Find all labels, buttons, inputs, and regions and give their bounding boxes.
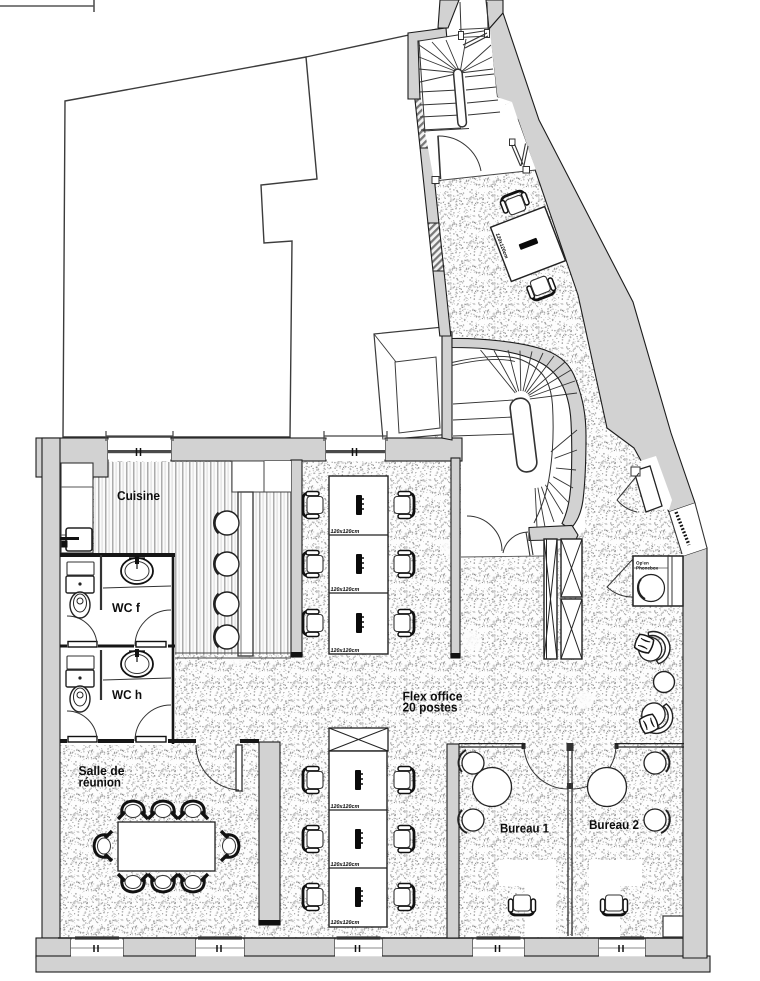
svg-text:WC h: WC h (112, 687, 142, 702)
svg-text:120x120cm: 120x120cm (331, 529, 360, 535)
svg-text:Bureau 2: Bureau 2 (589, 817, 639, 832)
svg-text:120x120cm: 120x120cm (331, 804, 360, 810)
svg-text:20 postes: 20 postes (403, 700, 458, 715)
svg-text:Bureau 1: Bureau 1 (500, 821, 549, 836)
svg-text:réunion: réunion (79, 775, 122, 790)
svg-text:120x120cm: 120x120cm (331, 862, 360, 868)
svg-text:Cuisine: Cuisine (117, 488, 160, 503)
svg-text:120x120cm: 120x120cm (331, 587, 360, 593)
svg-text:Phonebox: Phonebox (636, 566, 659, 571)
svg-text:120x120cm: 120x120cm (331, 648, 360, 654)
svg-text:120x120cm: 120x120cm (331, 920, 360, 926)
svg-text:WC f: WC f (112, 600, 141, 615)
